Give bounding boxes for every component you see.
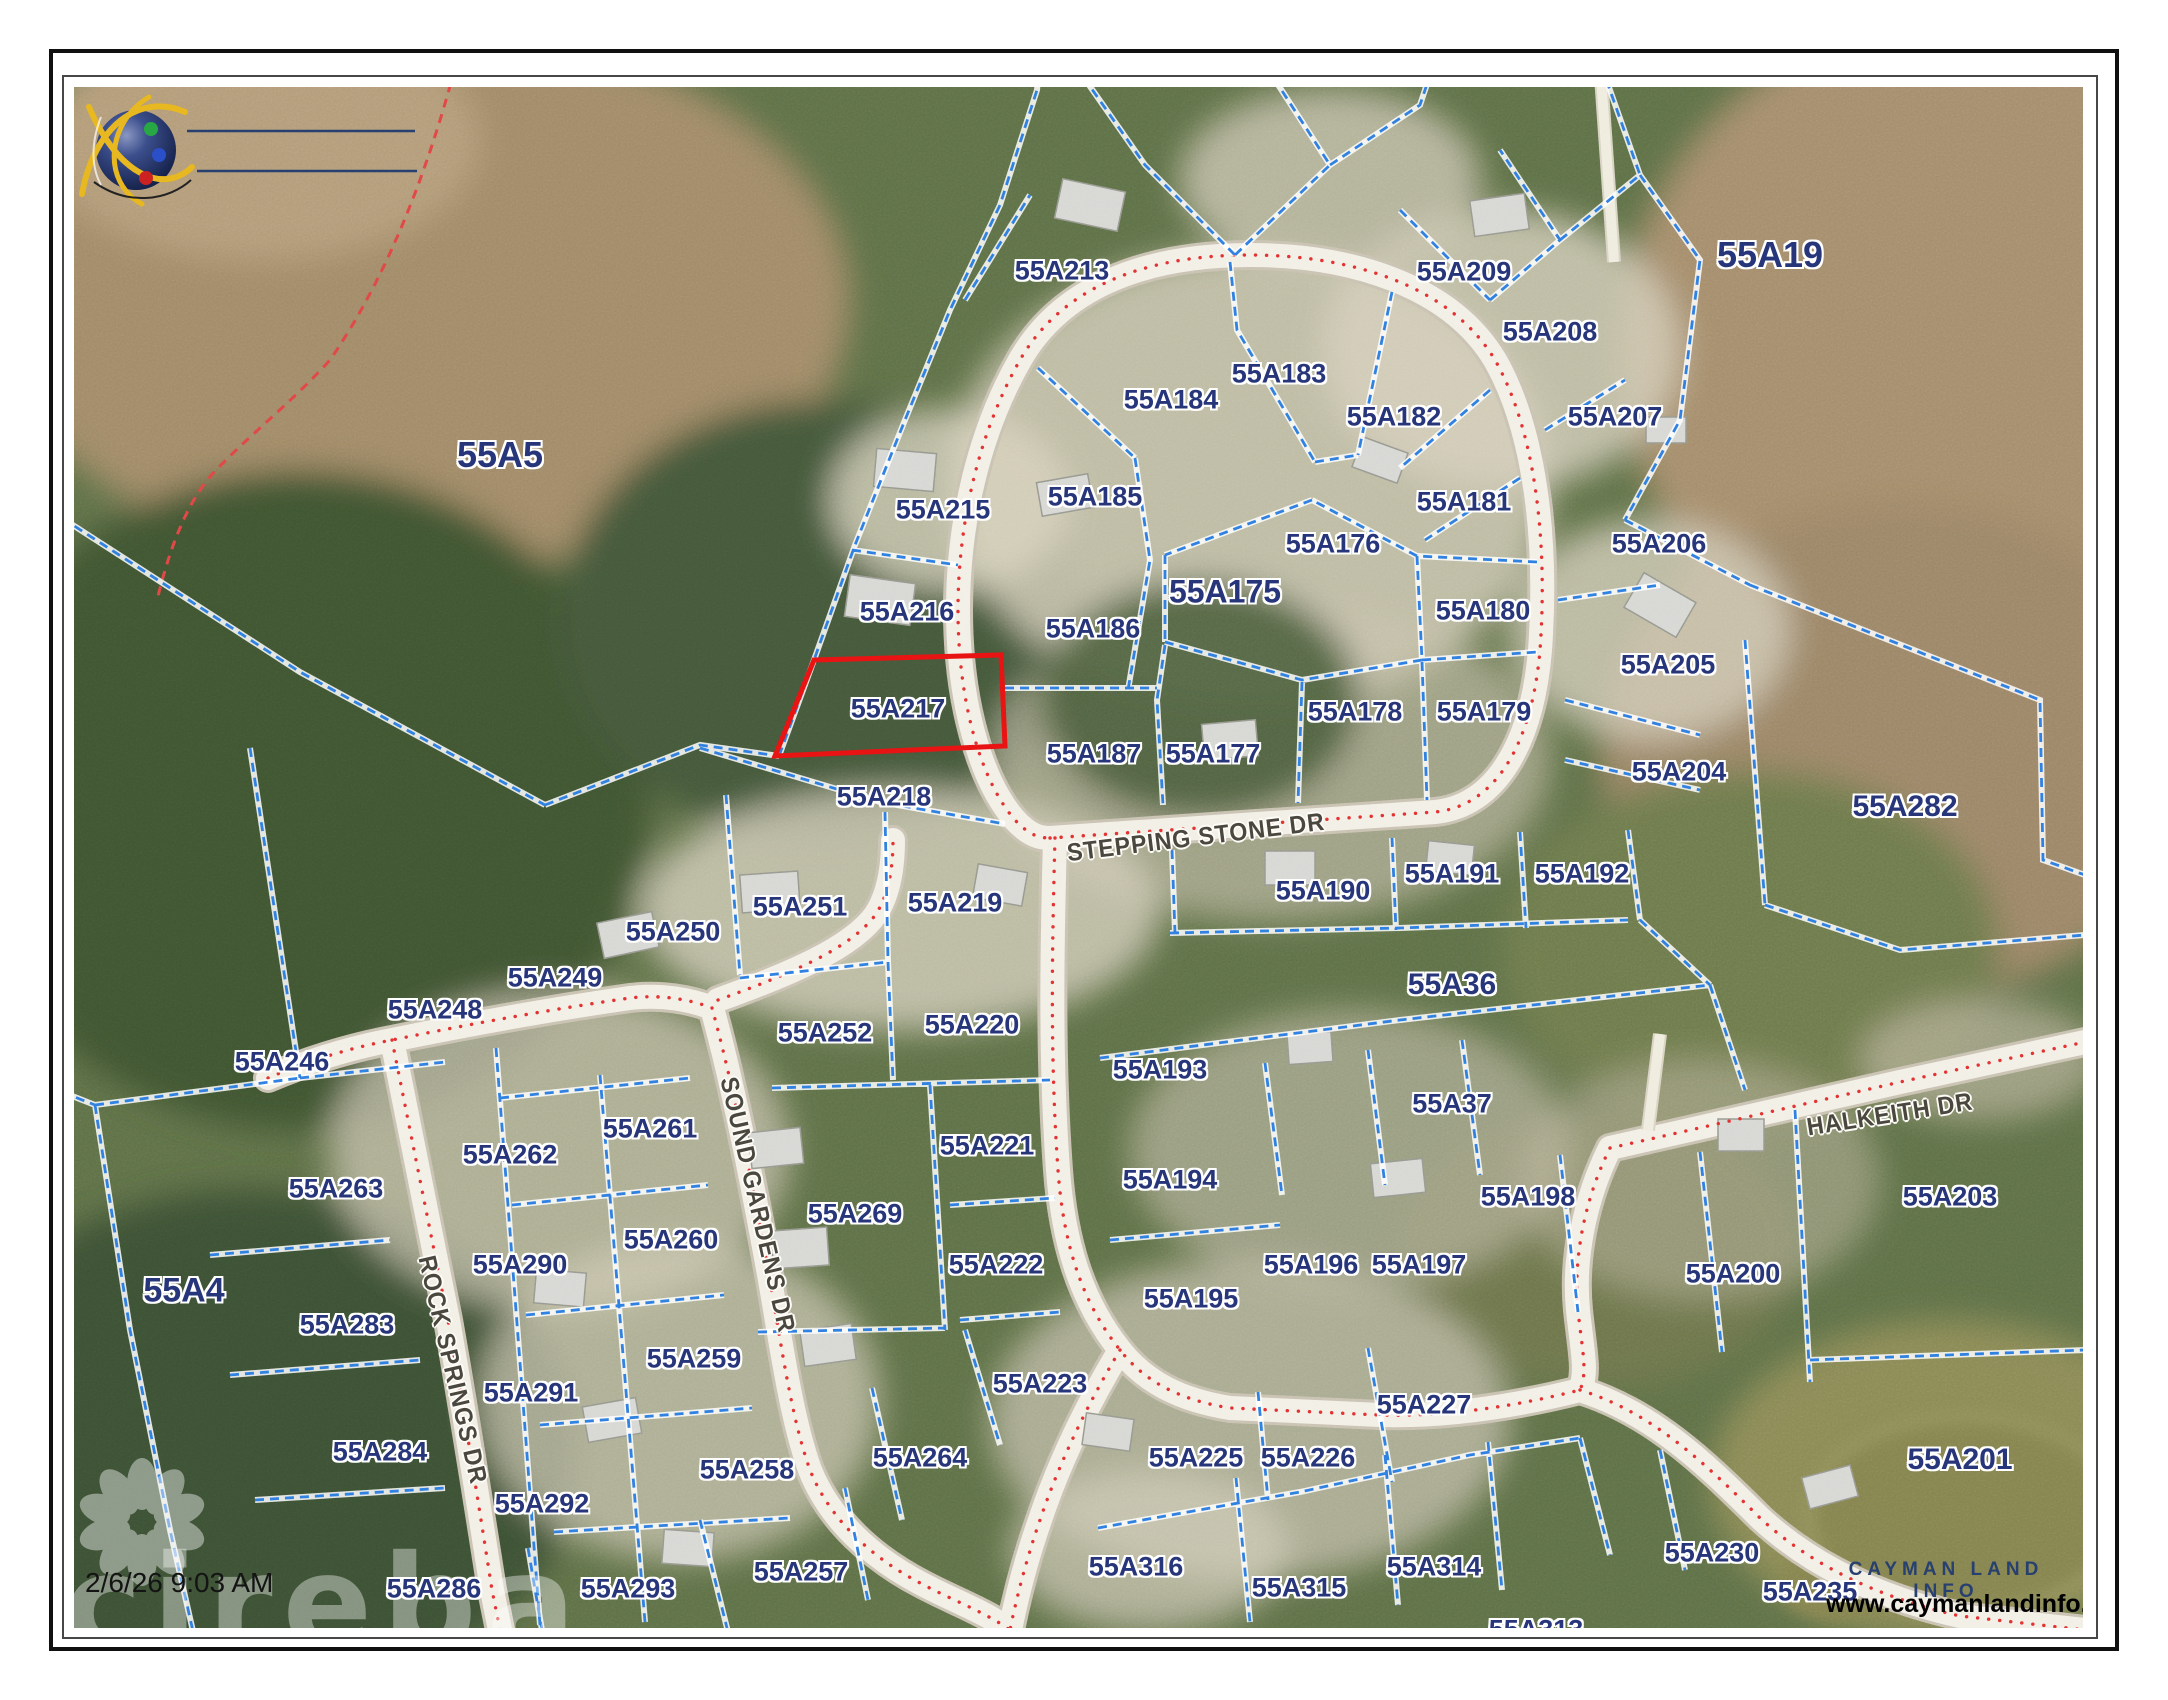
map-outer-frame bbox=[49, 49, 2119, 1651]
map-export-page: cireba 55A555A21355A20955A20855A1955A184… bbox=[0, 0, 2168, 1700]
